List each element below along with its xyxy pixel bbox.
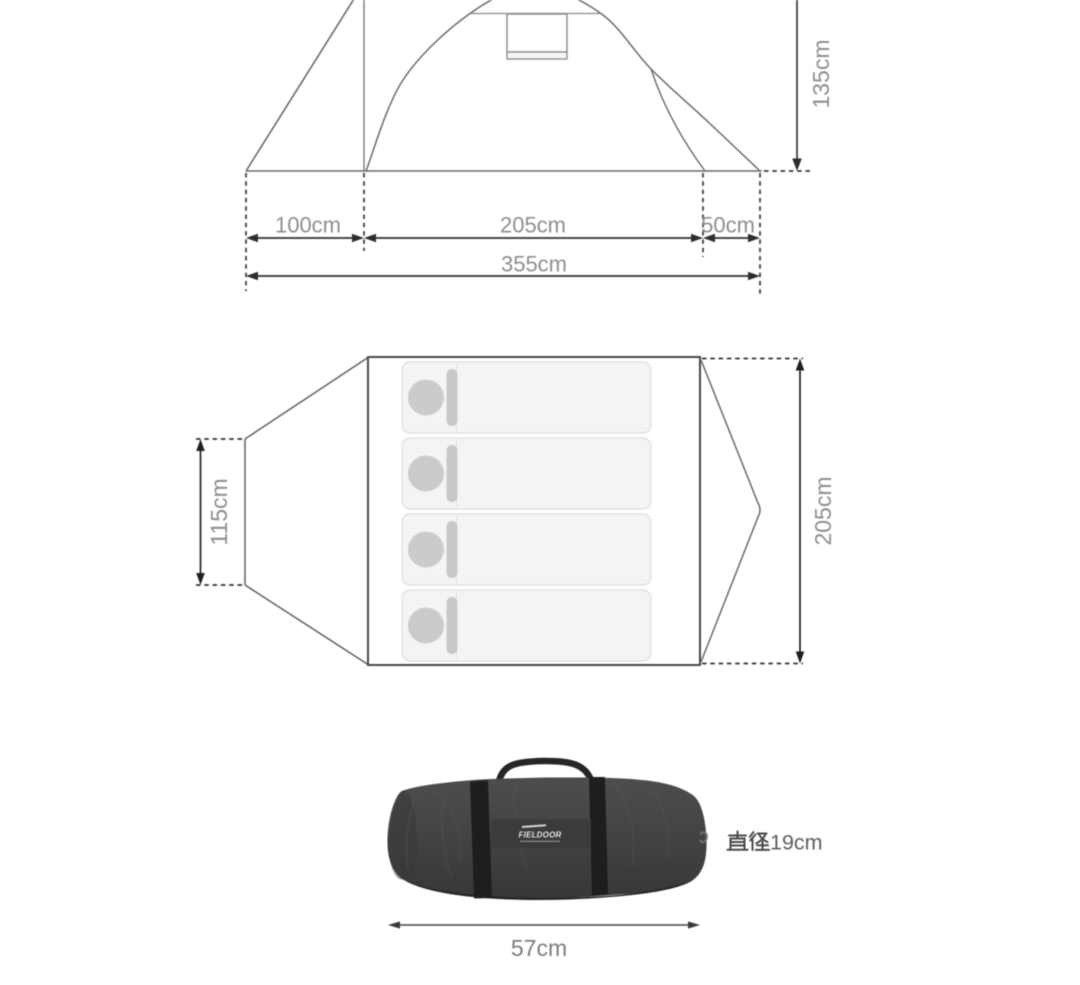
svg-text:19cm: 19cm: [770, 831, 823, 855]
svg-text:FIELDOOR: FIELDOOR: [519, 831, 562, 840]
svg-text:57cm: 57cm: [511, 935, 567, 961]
svg-text:100cm: 100cm: [275, 213, 341, 238]
svg-text:50cm: 50cm: [701, 213, 755, 238]
svg-text:355cm: 355cm: [501, 252, 567, 277]
svg-text:115cm: 115cm: [206, 478, 232, 545]
svg-text:205cm: 205cm: [810, 476, 836, 545]
svg-text:205cm: 205cm: [500, 213, 566, 238]
svg-text:135cm: 135cm: [808, 39, 834, 108]
